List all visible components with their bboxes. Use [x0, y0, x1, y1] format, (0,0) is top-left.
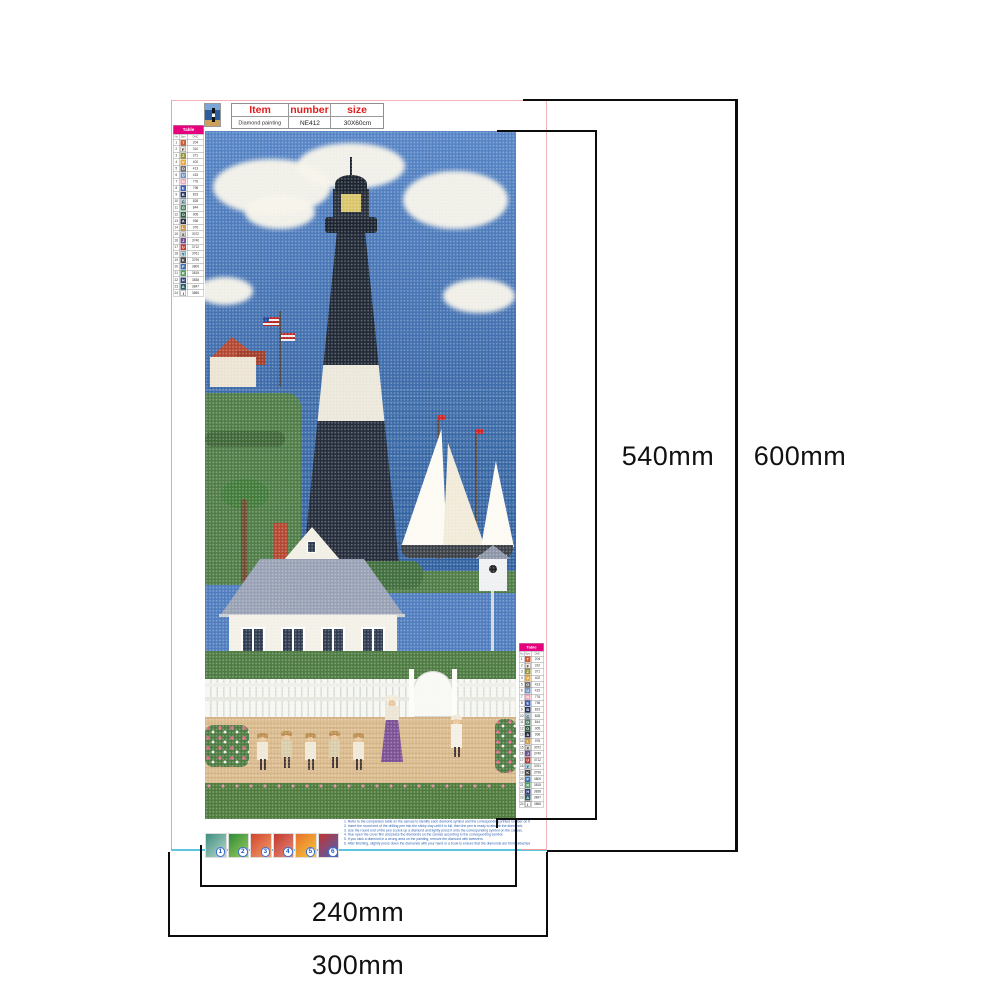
- house-chimney: [273, 523, 288, 559]
- step-number: 2: [238, 847, 248, 857]
- step-photo-4: 4: [273, 833, 295, 858]
- legend-dmc-code: 3865: [188, 290, 204, 297]
- fence-rail: [205, 683, 516, 687]
- birdhouse-hole: [489, 565, 497, 573]
- american-flag: [263, 317, 279, 326]
- outer-width-label: 300mm: [300, 950, 416, 981]
- step-photo-2: 2: [228, 833, 250, 858]
- step-photo-3: 3: [250, 833, 272, 858]
- right-color-table: TableNoSymDMC1T2042F3103Z3714V4025O4136U…: [519, 643, 544, 808]
- dim-600-top-line: [523, 99, 738, 101]
- dim-540-bottom-line: [497, 818, 597, 820]
- inner-height-label: 540mm: [612, 441, 724, 472]
- lighthouse-dome: [335, 175, 367, 193]
- dim-540-top-line: [497, 130, 597, 132]
- legend-title: Table: [520, 644, 544, 652]
- product-size-diagram: Item number size Diamond painting NE412 …: [0, 0, 1001, 1001]
- lighthouse-lantern: [333, 189, 369, 219]
- palm-tree-trunk: [241, 499, 247, 583]
- legend-title: Table: [174, 126, 204, 135]
- product-thumbnail: [204, 103, 221, 127]
- lighthouse-gallery: [325, 217, 377, 233]
- legend-symbol: I: [180, 290, 188, 297]
- boat-flag: [475, 429, 483, 434]
- dim-300-left-tick: [168, 852, 170, 937]
- step-photo-1: 1: [205, 833, 227, 858]
- canvas-edge-bottom-pink: [521, 849, 547, 850]
- garden-gate: [413, 671, 453, 717]
- gable-window: [307, 541, 316, 553]
- dim-600-bottom-line: [547, 850, 738, 852]
- grass-strip: [205, 783, 516, 819]
- dim-540-right-line: [595, 130, 597, 820]
- legend-row: 24I3865: [174, 290, 204, 297]
- dim-240-bottom-line: [200, 885, 517, 887]
- dim-300-bottom-line: [168, 935, 548, 937]
- step-photo-6: 6: [318, 833, 340, 858]
- item-info-table: Item number size Diamond painting NE412 …: [231, 103, 384, 129]
- step-number: 3: [261, 847, 271, 857]
- dim-240-right-tick: [515, 820, 517, 887]
- number-value: NE412: [300, 119, 320, 127]
- lighthouse-finial: [350, 157, 352, 177]
- step-number: 6: [328, 847, 338, 857]
- flagpole: [279, 311, 281, 387]
- gate-post: [409, 669, 414, 719]
- instruction-photo-strip: 123456: [205, 833, 339, 858]
- size-header: size: [331, 104, 383, 117]
- inner-width-label: 240mm: [300, 897, 416, 928]
- size-value: 30X60cm: [343, 119, 370, 127]
- canvas-edge-top: [171, 100, 547, 101]
- instruction-text: 1. Refer to the comparison table on the …: [344, 820, 530, 846]
- step-number: 5: [306, 847, 316, 857]
- legend-row: 24I3865: [520, 801, 544, 807]
- american-flag-2: [281, 333, 295, 341]
- cloud: [245, 195, 315, 229]
- outer-height-label: 600mm: [750, 441, 850, 472]
- flower-garden: [205, 651, 516, 679]
- diamond-painting-canvas: Item number size Diamond painting NE412 …: [171, 100, 547, 851]
- item-value: Diamond painting: [239, 120, 282, 126]
- boat-flag: [437, 415, 445, 420]
- birdhouse: [479, 555, 507, 591]
- step-number: 1: [216, 847, 226, 857]
- lighthouse-artwork: [205, 131, 516, 819]
- flower-bush: [495, 719, 516, 773]
- instruction-line: 6. After finishing, slightly press down …: [344, 842, 530, 846]
- number-header: number: [289, 104, 331, 117]
- dim-240-left-tick: [200, 845, 202, 887]
- dim-540-stub: [496, 818, 498, 828]
- legend-symbol: I: [525, 801, 532, 807]
- step-photo-5: 5: [295, 833, 317, 858]
- dim-300-right-tick: [546, 852, 548, 937]
- legend-dmc-code: 3865: [532, 801, 544, 807]
- cloud: [443, 279, 515, 313]
- cloud: [403, 171, 508, 229]
- left-color-table: TableNoSymDMC1T2042F3103Z3714V4025O4136U…: [173, 125, 204, 297]
- shoreline-shadow: [205, 431, 285, 447]
- step-number: 4: [283, 847, 293, 857]
- flower-bush: [205, 725, 249, 767]
- canvas-edge-right: [546, 100, 547, 851]
- item-header: Item: [232, 104, 289, 117]
- gate-post: [452, 669, 457, 719]
- dim-600-right-line: [735, 99, 738, 852]
- cottage-wall: [210, 357, 256, 387]
